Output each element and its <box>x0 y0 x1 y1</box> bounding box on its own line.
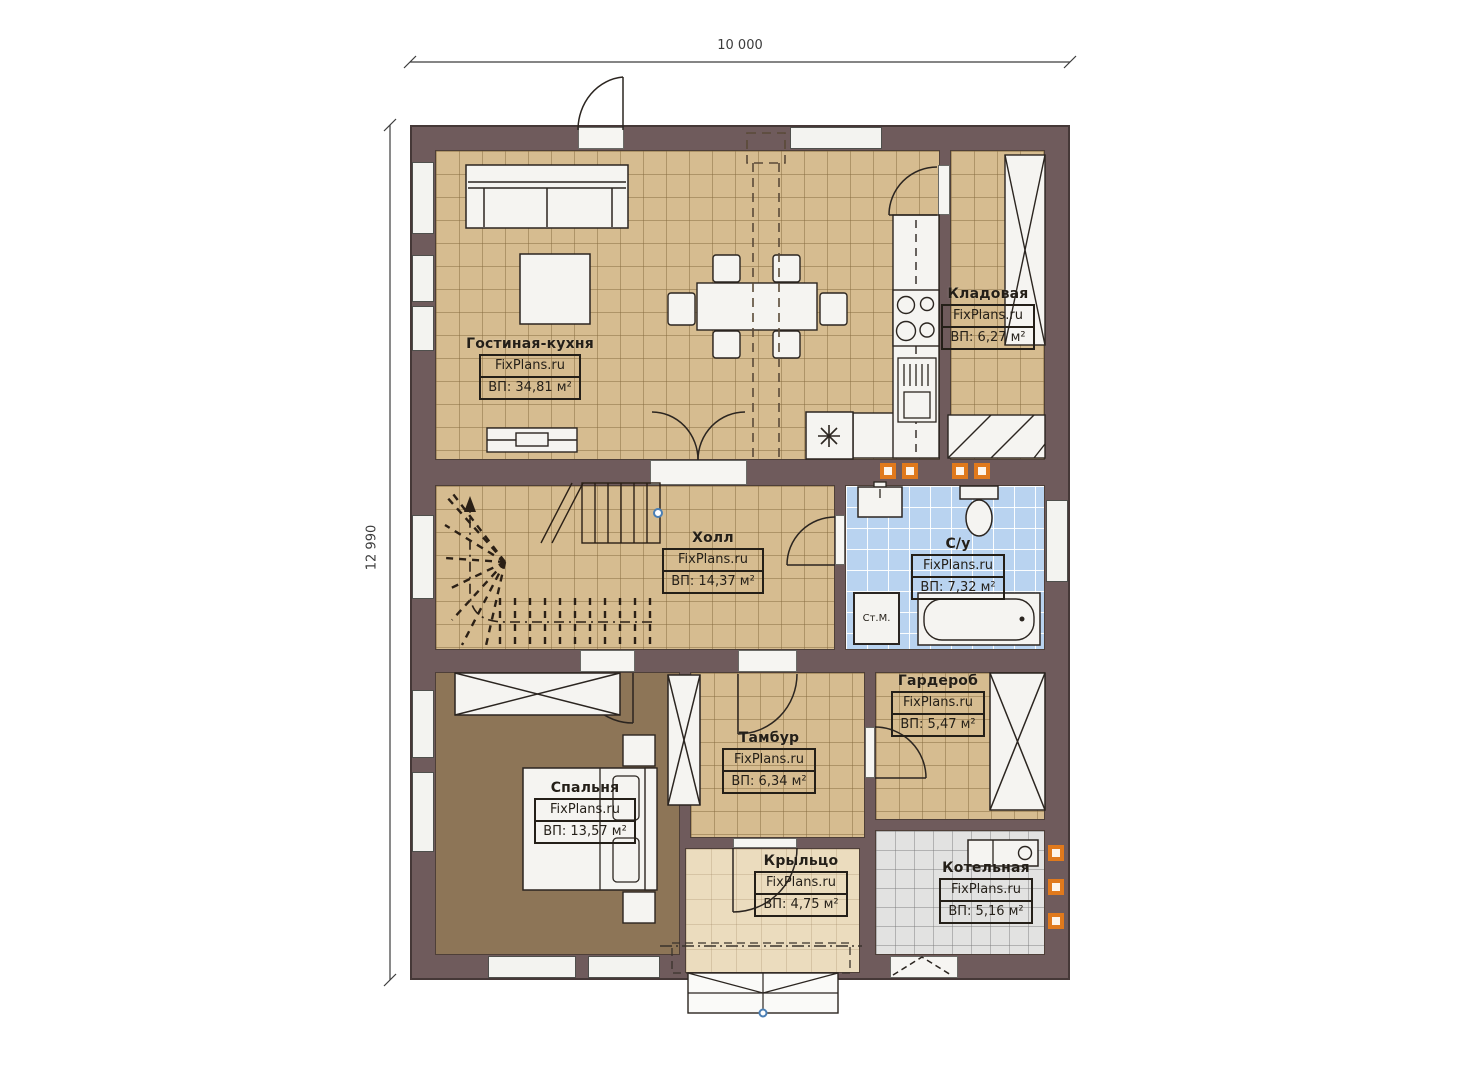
washing-machine-label: Ст.М. <box>863 613 891 624</box>
room-area: ВП: 5,47 м² <box>893 713 982 735</box>
window <box>488 956 576 978</box>
window <box>1046 500 1068 582</box>
brand-label: FixPlans.ru <box>893 693 982 713</box>
brand-label: FixPlans.ru <box>941 880 1030 900</box>
vent-icon <box>902 463 918 479</box>
room-name: Холл <box>652 530 774 546</box>
hall-bathroom-door-opening <box>835 515 845 565</box>
window <box>412 690 434 758</box>
room-name: Спальня <box>522 780 648 796</box>
room-area: ВП: 4,75 м² <box>756 893 845 915</box>
room-name: Гардероб <box>878 673 998 689</box>
hall-vestibule-door-opening <box>738 650 797 672</box>
room-label-bedroom: Спальня FixPlans.ru ВП: 13,57 м² <box>522 780 648 844</box>
window <box>412 255 434 302</box>
room-area: ВП: 6,27 м² <box>943 326 1032 348</box>
brand-label: FixPlans.ru <box>913 556 1002 576</box>
vent-icon <box>952 463 968 479</box>
room-name: Гостиная-кухня <box>452 336 608 352</box>
room-label-boiler: Котельная FixPlans.ru ВП: 5,16 м² <box>924 860 1048 924</box>
room-area: ВП: 13,57 м² <box>536 820 634 842</box>
living-hall-door-opening <box>650 460 747 485</box>
vent-icon <box>880 463 896 479</box>
vent-icon <box>1048 845 1064 861</box>
brand-label: FixPlans.ru <box>664 550 762 570</box>
room-label-wardrobe: Гардероб FixPlans.ru ВП: 5,47 м² <box>878 673 998 737</box>
room-label-storage: Кладовая FixPlans.ru ВП: 6,27 м² <box>928 286 1048 350</box>
brand-label: FixPlans.ru <box>756 873 845 893</box>
room-label-vestibule: Тамбур FixPlans.ru ВП: 6,34 м² <box>708 730 830 794</box>
window <box>588 956 660 978</box>
brand-label: FixPlans.ru <box>943 306 1032 326</box>
window <box>790 127 882 149</box>
room-label-living-kitchen: Гостиная-кухня FixPlans.ru ВП: 34,81 м² <box>452 336 608 400</box>
window <box>412 772 434 852</box>
room-area: ВП: 6,34 м² <box>724 770 813 792</box>
room-area: ВП: 14,37 м² <box>664 570 762 592</box>
room-name: Крыльцо <box>740 853 862 869</box>
room-name: С/у <box>896 536 1020 552</box>
dimension-height-label: 12 990 <box>365 498 380 598</box>
bedroom-door-opening <box>580 650 635 672</box>
washing-machine: Ст.М. <box>853 592 900 645</box>
brand-label: FixPlans.ru <box>481 356 579 376</box>
room-living-kitchen-floor <box>435 150 940 460</box>
dimension-width-label: 10 000 <box>690 38 790 53</box>
vent-icon <box>1048 913 1064 929</box>
room-label-hall: Холл FixPlans.ru ВП: 14,37 м² <box>652 530 774 594</box>
floor-plan-canvas: 10 000 12 990 <box>0 0 1473 1080</box>
room-name: Котельная <box>924 860 1048 876</box>
vestibule-wardrobe-door-opening <box>865 727 875 778</box>
window <box>412 162 434 234</box>
storage-door-opening <box>938 165 950 215</box>
room-label-bathroom: С/у FixPlans.ru ВП: 7,32 м² <box>896 536 1020 600</box>
entry-door-opening <box>578 127 624 149</box>
vent-icon <box>1048 879 1064 895</box>
brand-label: FixPlans.ru <box>724 750 813 770</box>
room-label-porch: Крыльцо FixPlans.ru ВП: 4,75 м² <box>740 853 862 917</box>
room-area: ВП: 5,16 м² <box>941 900 1030 922</box>
vestibule-porch-door-opening <box>733 838 797 848</box>
window <box>412 306 434 351</box>
room-name: Тамбур <box>708 730 830 746</box>
room-area: ВП: 34,81 м² <box>481 376 579 398</box>
room-name: Кладовая <box>928 286 1048 302</box>
vent-icon <box>974 463 990 479</box>
boiler-door-opening <box>890 956 958 978</box>
brand-label: FixPlans.ru <box>536 800 634 820</box>
room-area: ВП: 7,32 м² <box>913 576 1002 598</box>
window <box>412 515 434 599</box>
room-hall-floor <box>435 485 835 650</box>
